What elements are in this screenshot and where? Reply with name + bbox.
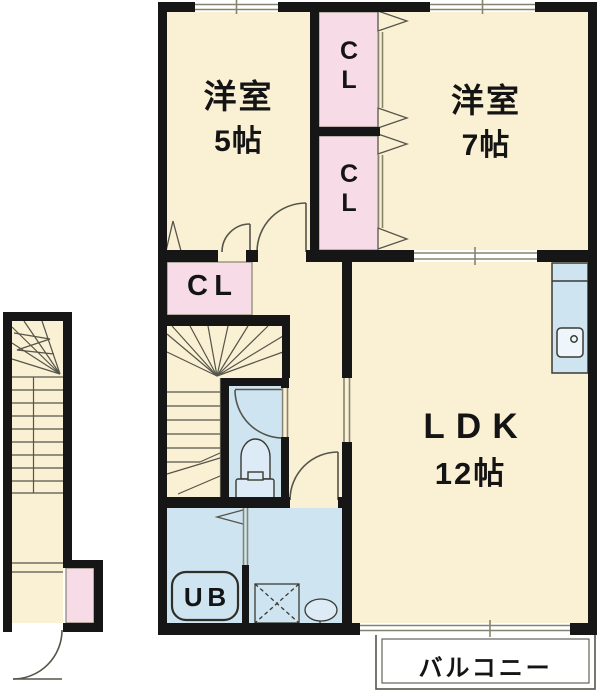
entry-porch-floor (66, 568, 94, 623)
room-label-western7: 洋室 7帖 (384, 78, 588, 168)
unit-bath-label: UB (172, 582, 238, 613)
room-western5-name: 洋室 (167, 74, 310, 120)
room-western7-size: 7帖 (384, 124, 588, 168)
room-western5-size: 5帖 (167, 120, 310, 164)
room-ldk-name: LDK (353, 403, 588, 451)
closet-hall-label: CL (167, 270, 252, 303)
room-label-western5: 洋室 5帖 (167, 74, 310, 164)
balcony-label: バルコニー (376, 648, 595, 683)
closet-lower-label: C L (318, 160, 380, 218)
kitchen-counter (552, 263, 588, 373)
room-ldk-size: 12帖 (353, 451, 588, 497)
closet-upper-label: C L (318, 37, 380, 95)
floorplan-page: 洋室 5帖 洋室 7帖 LDK 12帖 C L C L CL UB バルコニー (0, 0, 600, 696)
room-western7-name: 洋室 (384, 78, 588, 124)
room-label-ldk: LDK 12帖 (353, 403, 588, 497)
